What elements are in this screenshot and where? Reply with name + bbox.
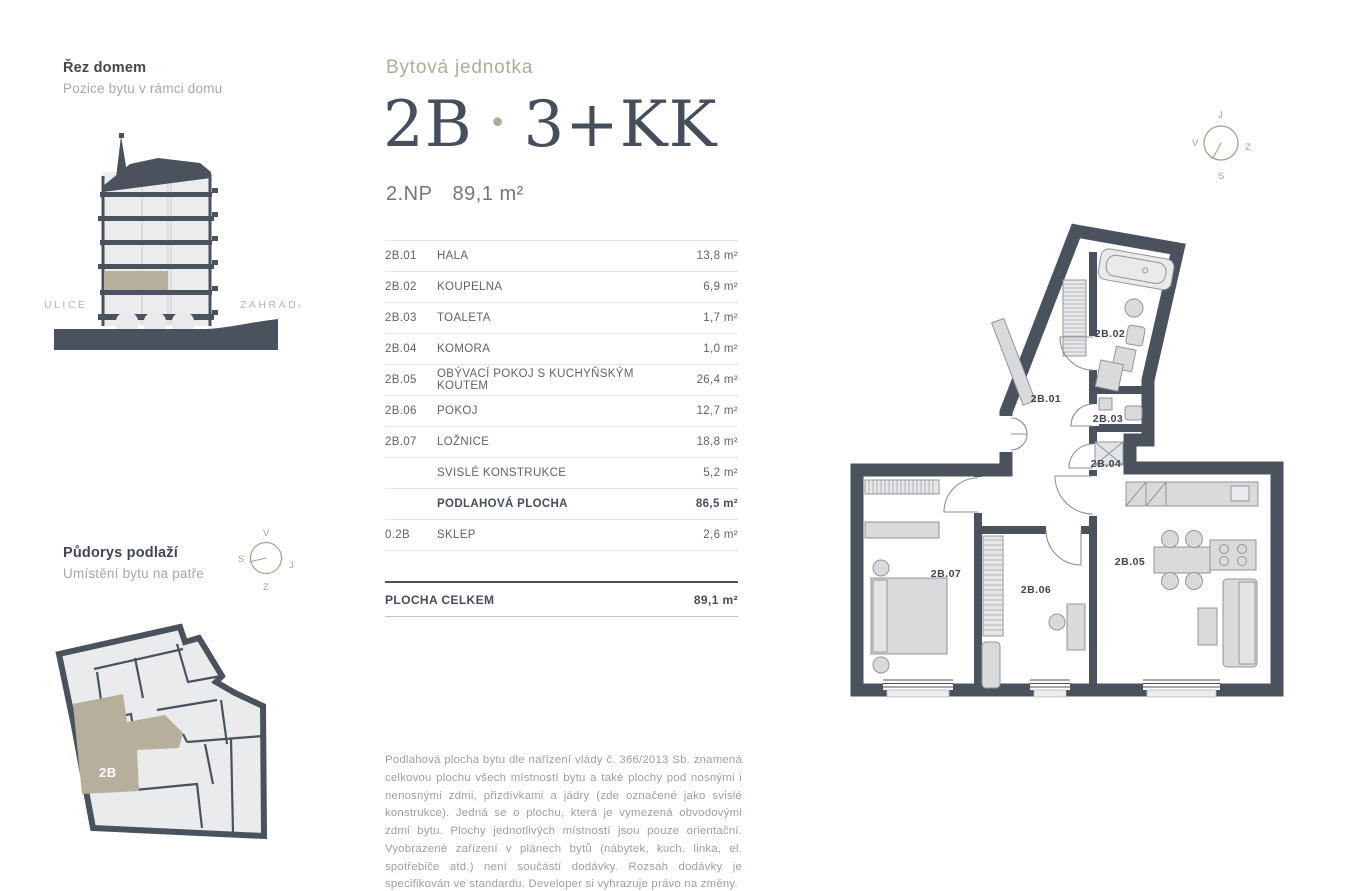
door-openings: [972, 336, 1099, 536]
table-row: 2B.04 KOMORA 1,0 m²: [385, 334, 738, 365]
window-sill: [1034, 690, 1066, 697]
table-total-row: PLOCHA CELKEM 89,1 m²: [385, 581, 738, 617]
room-name: SKLEP: [437, 529, 703, 541]
bedroom-radiator: [865, 480, 939, 494]
compass-right: Z: [1245, 142, 1251, 153]
windows: [883, 677, 1220, 697]
room-code: 2B.06: [385, 405, 437, 417]
nightstand: [873, 657, 889, 673]
compass-left: V: [1192, 138, 1199, 149]
street-label: ULICE: [44, 299, 87, 311]
table-row: 2B.07 LOŽNICE 18,8 m²: [385, 427, 738, 458]
room-table: 2B.01 HALA 13,8 m² 2B.02 KOUPELNA 6,9 m²…: [385, 240, 738, 617]
compass-top: V: [263, 528, 270, 539]
room-label-obyvaci-pokoj: 2B.05: [1115, 556, 1146, 568]
room-name: SVISLÉ KONSTRUKCE: [437, 467, 703, 479]
apartment-floor-plan: 2B.01 2B.02 2B.03 2B.04 2B.05 2B.06 2B.0…: [843, 222, 1323, 702]
room-code: 2B.04: [385, 343, 437, 355]
room-name: PODLAHOVÁ PLOCHA: [437, 498, 696, 510]
room-area: 1,7 m²: [703, 312, 738, 324]
unit-title: 2B•3+KK: [383, 88, 717, 162]
table-row: 2B.01 HALA 13,8 m²: [385, 240, 738, 272]
title-separator-dot: •: [489, 106, 508, 141]
room-label-loznice: 2B.07: [931, 568, 962, 580]
building-section-body: [54, 133, 278, 350]
table-row: 2B.05 OBÝVACÍ POKOJ S KUCHYŇSKÝM KOUTEM …: [385, 365, 738, 396]
building-footprint: 2B: [59, 627, 264, 836]
bathroom-cabinet: [1095, 360, 1123, 391]
unit-subline: 2.NP 89,1 m²: [386, 183, 524, 206]
room-area: 18,8 m²: [697, 436, 738, 448]
wc-washbasin: [1099, 398, 1112, 410]
room-area: 12,7 m²: [697, 405, 738, 417]
hall-wardrobe: [1063, 280, 1086, 356]
chair: [1186, 573, 1203, 590]
room-area: 5,2 m²: [703, 467, 738, 479]
room-code: 2B.05: [385, 374, 437, 386]
unit-code: 2B: [383, 88, 473, 162]
table-row: 2B.03 TOALETA 1,7 m²: [385, 303, 738, 334]
compass-needle: [249, 558, 266, 562]
wc-toilet: [1125, 406, 1142, 420]
room-wardrobe: [983, 536, 1003, 636]
floor-overview-subtitle: Umístění bytu na patře: [63, 566, 204, 581]
compass-top: J: [1218, 110, 1223, 121]
room-area: 2,6 m²: [703, 529, 738, 541]
bathtub: [1097, 248, 1175, 291]
room-name: POKOJ: [437, 405, 697, 417]
spire: [116, 136, 128, 178]
building-section-drawing: ULICE ZAHRADA: [40, 128, 300, 368]
room-name: HALA: [437, 250, 697, 262]
room-code: 2B.02: [385, 281, 437, 293]
compass-left: S: [238, 554, 245, 565]
brochure-page: Řez domem Pozice bytu v rámci domu: [0, 0, 1347, 891]
floor-overview-title: Půdorys podlaží: [63, 545, 204, 561]
table-row: 2B.02 KOUPELNA 6,9 m²: [385, 272, 738, 303]
room-label-pokoj: 2B.06: [1021, 584, 1052, 596]
cooktop-counter: [1210, 540, 1256, 570]
room-area: 26,4 m²: [697, 374, 738, 386]
room-area: 6,9 m²: [703, 281, 738, 293]
entrance-door-leaf: [1011, 434, 1027, 450]
bed-pillows: [873, 580, 887, 652]
room-name: TOALETA: [437, 312, 703, 324]
room-area: 13,8 m²: [697, 250, 738, 262]
dining-table: [1154, 547, 1210, 573]
unit-layout: 3+KK: [523, 88, 717, 162]
bathroom-sink: [1125, 299, 1143, 317]
desk-chair: [1049, 614, 1065, 630]
table-row: 2B.06 POKOJ 12,7 m²: [385, 396, 738, 427]
room-code: 2B.03: [385, 312, 437, 324]
total-label: PLOCHA CELKEM: [385, 593, 694, 607]
room-label-toaleta: 2B.03: [1093, 413, 1124, 425]
chair: [1162, 531, 1179, 548]
room-name: KOMORA: [437, 343, 703, 355]
desk: [1067, 604, 1085, 650]
section-view-header: Řez domem Pozice bytu v rámci domu: [63, 60, 222, 96]
compass-right: J: [289, 560, 294, 571]
compass-bottom: S: [1218, 171, 1225, 182]
room-label-hala: 2B.01: [1031, 393, 1062, 405]
plan-compass-icon: J V Z S: [1180, 98, 1264, 188]
room-name: LOŽNICE: [437, 436, 697, 448]
entrance-door-leaf: [1011, 418, 1027, 434]
legal-disclaimer: Podlahová plocha bytu dle nařízení vlády…: [385, 752, 742, 891]
total-area: 89,1 m²: [694, 593, 738, 607]
garden-label: ZAHRADA: [240, 299, 300, 311]
room-name: KOUPELNA: [437, 281, 703, 293]
room-name: OBÝVACÍ POKOJ S KUCHYŇSKÝM KOUTEM: [437, 368, 697, 392]
unit-floor: 2.NP: [386, 183, 432, 205]
unit-2b-label: 2B: [99, 765, 117, 780]
table-row-floor-area: PODLAHOVÁ PLOCHA 86,5 m²: [385, 489, 738, 520]
sofa-backrest: [1239, 582, 1255, 664]
floor-overview-header: Půdorys podlaží Umístění bytu na patře: [63, 545, 204, 581]
chair: [1162, 573, 1179, 590]
compass-icon: V S J Z: [228, 520, 304, 596]
table-row: 0.2B SKLEP 2,6 m²: [385, 520, 738, 551]
room-label-komora: 2B.04: [1091, 458, 1122, 470]
highlighted-floor-2np: [104, 271, 168, 290]
bathroom-toilet: [1125, 325, 1145, 347]
room-code: 0.2B: [385, 529, 437, 541]
table-row: SVISLÉ KONSTRUKCE 5,2 m²: [385, 458, 738, 489]
room-area: 1,0 m²: [703, 343, 738, 355]
room-area: 86,5 m²: [696, 498, 738, 510]
section-view-title: Řez domem: [63, 60, 222, 76]
chaise: [982, 642, 1000, 688]
compass-needle: [1213, 143, 1221, 158]
window-sill: [887, 690, 949, 697]
bedroom-shelf: [865, 522, 939, 538]
unit-area: 89,1 m²: [453, 183, 524, 205]
unit-type-eyebrow: Bytová jednotka: [386, 57, 533, 79]
room-label-koupelna: 2B.02: [1095, 328, 1126, 340]
nightstand: [873, 560, 889, 576]
room-code: 2B.01: [385, 250, 437, 262]
room-code: 2B.07: [385, 436, 437, 448]
coffee-table: [1198, 608, 1217, 645]
floor-overview-drawing: 2B: [35, 614, 297, 868]
window-sill: [1147, 690, 1216, 697]
section-view-subtitle: Pozice bytu v rámci domu: [63, 81, 222, 96]
chair: [1186, 531, 1203, 548]
kitchen-sink: [1231, 486, 1249, 501]
compass-bottom: Z: [263, 582, 269, 593]
